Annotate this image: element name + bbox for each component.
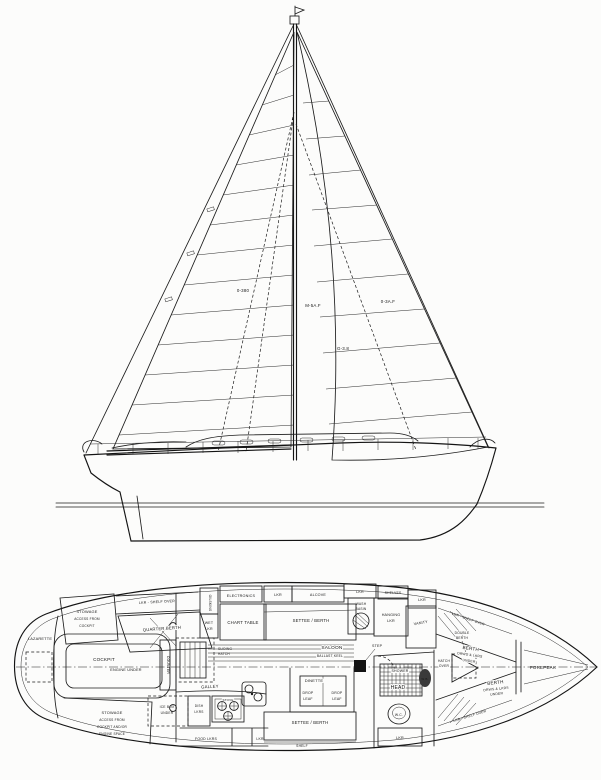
mast-section	[354, 660, 366, 672]
label-settee-berth-port: SETTEE / BERTH	[292, 720, 329, 725]
label-ice-box-1: ICE BOX	[160, 705, 175, 709]
label-vanity: VANITY	[413, 620, 428, 626]
label-galley: GALLEY	[201, 684, 219, 690]
label-leaf-1b: LEAF	[303, 697, 313, 701]
label-wash-basin-1: WASH	[356, 602, 367, 606]
masthead-fitting	[290, 16, 299, 24]
label-lkr-1: LKR	[274, 593, 282, 597]
label-electronics: ELECTRONICS	[227, 594, 256, 598]
label-chart-table: CHART TABLE	[227, 620, 258, 625]
forestay	[297, 26, 489, 448]
label-stowage-port-1: STOWAGE	[101, 710, 122, 715]
genoa-seams	[303, 101, 472, 424]
sailboat-drawing-sheet: 0-380 M-5A.F 0-3A.F G-3.8 LAZARETT	[0, 0, 601, 780]
label-wash-basin-2: BASIN	[356, 607, 367, 611]
label-step: STEP	[372, 644, 383, 648]
label-berth-stbd: BERTH DRWS & LKRS UNDER	[456, 644, 484, 664]
underbody-outline	[84, 448, 496, 541]
label-galley-lkr: LKR	[256, 737, 264, 741]
mainsail-outline	[113, 32, 294, 449]
label-cockpit: COCKPIT	[93, 657, 115, 662]
sink-bowl-2	[254, 693, 262, 701]
settee-stbd-backrest	[264, 610, 356, 612]
label-stowage-port-2: ACCESS FROM	[99, 718, 125, 722]
label-lkr-2: LKR	[356, 590, 364, 594]
label-shower: SHOWER	[392, 669, 409, 673]
quarter-berth-box	[118, 612, 212, 652]
inner-stay	[296, 124, 416, 450]
label-lazarette: LAZARETTE	[28, 636, 52, 641]
label-dish-lkrs-2: LKRS	[194, 710, 203, 714]
label-oilskins: OILSKINS	[208, 595, 212, 612]
masthead-pennant	[295, 6, 304, 16]
label-stowage-port-4: ENGINE SPACE	[99, 732, 125, 736]
sail-annotation-mast: M-5A.F	[305, 303, 321, 308]
mainsail-seams	[119, 65, 294, 435]
sink-unit	[242, 682, 266, 706]
label-lkr-shelf-over-aft: LKR - SHELF OVER	[139, 599, 176, 605]
label-shelf-top: LKR - SHELF OVER	[451, 612, 485, 627]
label-quarter-berth: QUARTER BERTH	[143, 625, 182, 633]
label-berth-stbd-1: BERTH	[462, 645, 479, 652]
label-counter: COUNTER	[166, 656, 170, 675]
boat-drawing: 0-380 M-5A.F 0-3A.F G-3.8 LAZARETT	[0, 0, 601, 780]
companionway-ladder	[180, 642, 206, 678]
stove-burners	[218, 702, 239, 721]
label-berth-port-3: UNDER	[490, 691, 504, 696]
label-settee-berth-stbd: SETTEE / BERTH	[293, 618, 330, 623]
label-sliding-hatch-2: HATCH	[218, 652, 230, 656]
label-berth-port-1: BERTH	[487, 679, 504, 686]
label-berth-port: BERTH DRWS & LKRS UNDER	[482, 679, 510, 698]
label-stove: STOVE	[222, 698, 233, 702]
label-dish-lkrs-1: DISH	[195, 704, 204, 708]
vanity-box	[406, 606, 436, 648]
label-drop-1a: DROP	[303, 691, 314, 695]
label-double-berth-1: DOUBLE	[455, 631, 470, 635]
rudder-line	[137, 496, 143, 539]
label-stowage-stbd-1: STOWAGE	[76, 609, 97, 614]
label-saloon: SALOON	[321, 645, 343, 651]
label-stowage-port-3: COCKPIT AND/OR	[97, 725, 128, 729]
label-head-lkr: LKR	[396, 736, 404, 740]
label-berth-stbd-2: DRWS & LKRS	[457, 651, 483, 659]
label-alcove: ALCOVE	[310, 593, 327, 597]
food-locker-band	[180, 728, 268, 746]
sail-annotation-foot: G-3.8	[337, 346, 349, 351]
label-engine-under: ENGINE UNDER	[110, 668, 142, 672]
label-shelves: SHELVES	[385, 591, 402, 595]
sail-plan: 0-380 M-5A.F 0-3A.F G-3.8	[86, 6, 489, 460]
label-lkr-3: LKR	[418, 598, 426, 602]
accommodation-plan: LAZARETTE STOWAGE ACCESS FROM COCKPIT CO…	[15, 583, 598, 751]
label-stowage-stbd-2: ACCESS FROM	[74, 617, 100, 621]
sail-annotation-genoa: 0-3A.F	[381, 299, 395, 304]
label-drop-2a: DROP	[332, 691, 343, 695]
faucet	[251, 693, 253, 695]
label-head: HEAD	[391, 685, 406, 691]
label-leaf-2b: LEAF	[332, 697, 342, 701]
label-wet-lkr-1: WET	[205, 621, 214, 625]
genoa-outline	[297, 32, 488, 460]
label-stowage-stbd-3: COCKPIT	[79, 624, 95, 628]
label-hatch-over-1: HATCH	[438, 659, 451, 663]
backstay	[86, 26, 293, 453]
label-hanging-lkr-2: LKR	[387, 619, 395, 623]
label-shelf-bottom: LKR - SHELF OVER	[453, 709, 487, 723]
mainsail-patches	[165, 207, 215, 302]
label-wb: W.B.	[421, 677, 428, 681]
label-wet-lkr-2: LKR	[205, 627, 213, 631]
label-ballast-keel: BALLAST KEEL	[317, 654, 343, 658]
label-wc: W.C.	[395, 713, 403, 717]
hanging-locker-box	[374, 598, 408, 636]
label-ice-box-2: UNDER	[161, 711, 174, 715]
label-food-lkrs: FOOD LKRS	[195, 737, 217, 741]
label-dinette: DINETTE	[305, 678, 324, 683]
label-forepeak: FOREPEAK	[530, 665, 556, 670]
settee-port-box	[264, 712, 356, 740]
label-shelf: SHELF	[296, 744, 308, 748]
label-hanging-lkr-1: HANGING	[382, 613, 401, 617]
ladder-rungs	[185, 642, 200, 678]
stern-pushpit	[83, 441, 102, 452]
cockpit-well	[66, 644, 162, 688]
waterlines	[56, 503, 544, 507]
sail-annotation-main: 0-380	[237, 288, 250, 293]
wet-locker	[200, 614, 218, 638]
label-hatch-over-2: OVER	[439, 664, 450, 668]
running-backstays	[218, 112, 294, 452]
label-double-berth-2: BERTH	[456, 636, 469, 640]
